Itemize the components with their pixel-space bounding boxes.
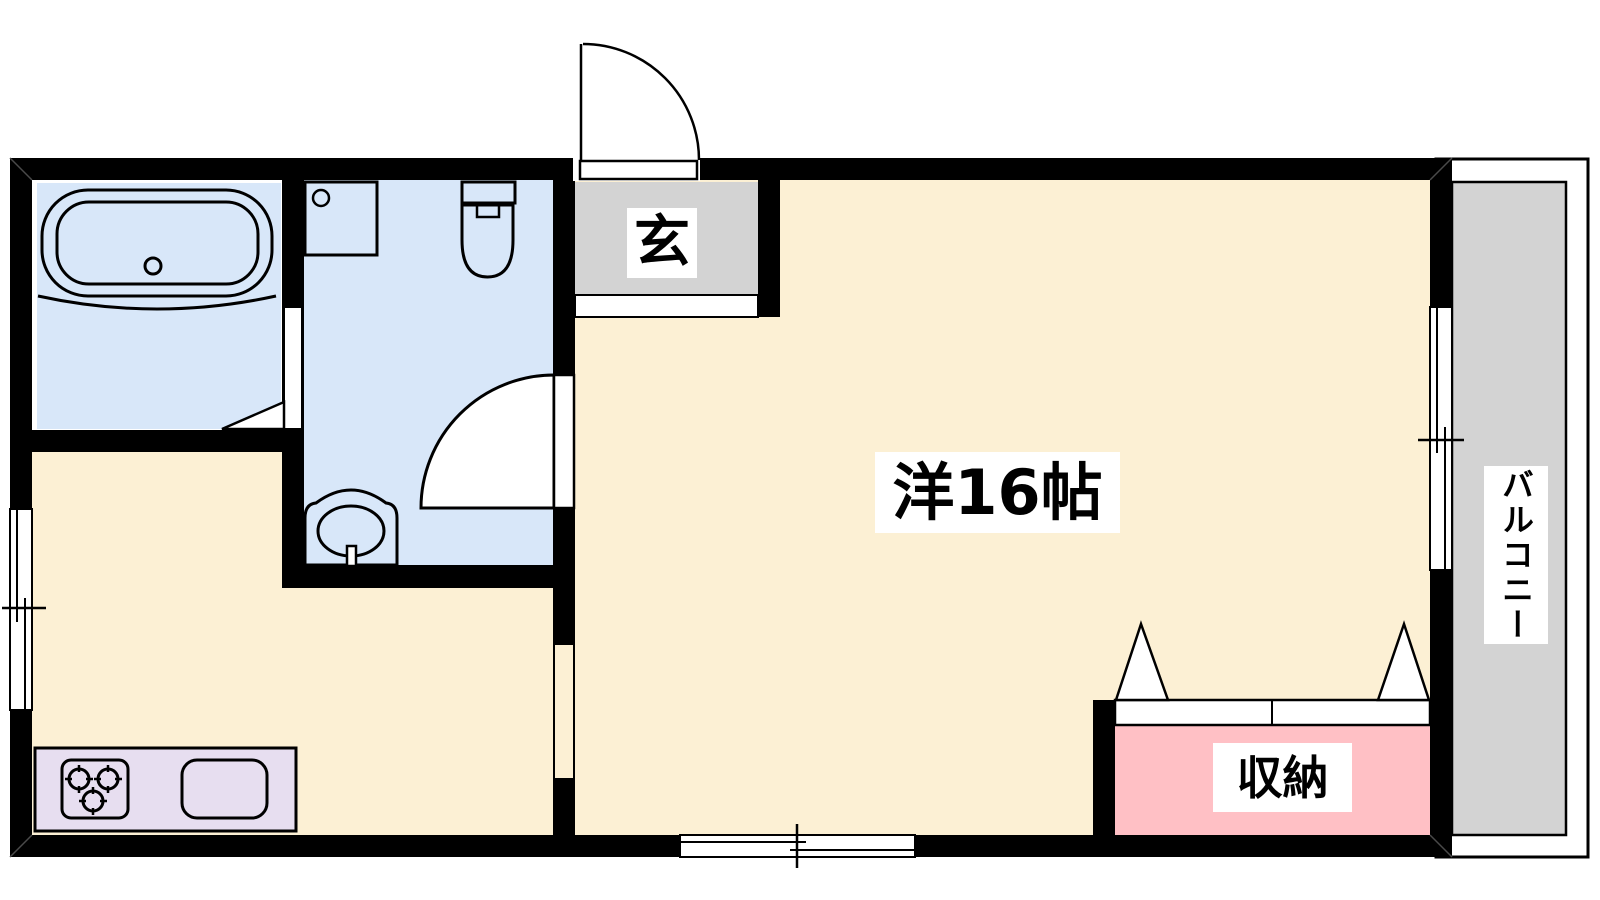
kitchen-counter <box>35 748 296 831</box>
wall-left <box>10 158 32 857</box>
washroom-door-leaf <box>554 375 574 508</box>
wall-washroom-bottom <box>282 565 575 588</box>
entrance-step <box>575 295 758 317</box>
entrance-label: 玄 <box>627 208 697 278</box>
wall-storage-left <box>1093 700 1115 857</box>
floor-plan: 玄 洋16帖 収納 バルコニー <box>0 0 1600 900</box>
balcony-label: バルコニー <box>1484 466 1548 644</box>
floor-plan-drawing <box>0 0 1600 900</box>
basin-faucet <box>347 546 356 566</box>
wall-top <box>10 158 1452 180</box>
entrance-door-leaf <box>580 161 697 179</box>
wall-entrance-right <box>758 158 780 317</box>
main-room-label: 洋16帖 <box>875 452 1120 533</box>
storage-label: 収納 <box>1213 743 1352 812</box>
bathroom-floor <box>37 183 281 429</box>
wall-bath-bottom <box>32 430 304 452</box>
entrance-door-swing-icon <box>573 44 700 181</box>
kitchen-doorway <box>552 645 576 778</box>
